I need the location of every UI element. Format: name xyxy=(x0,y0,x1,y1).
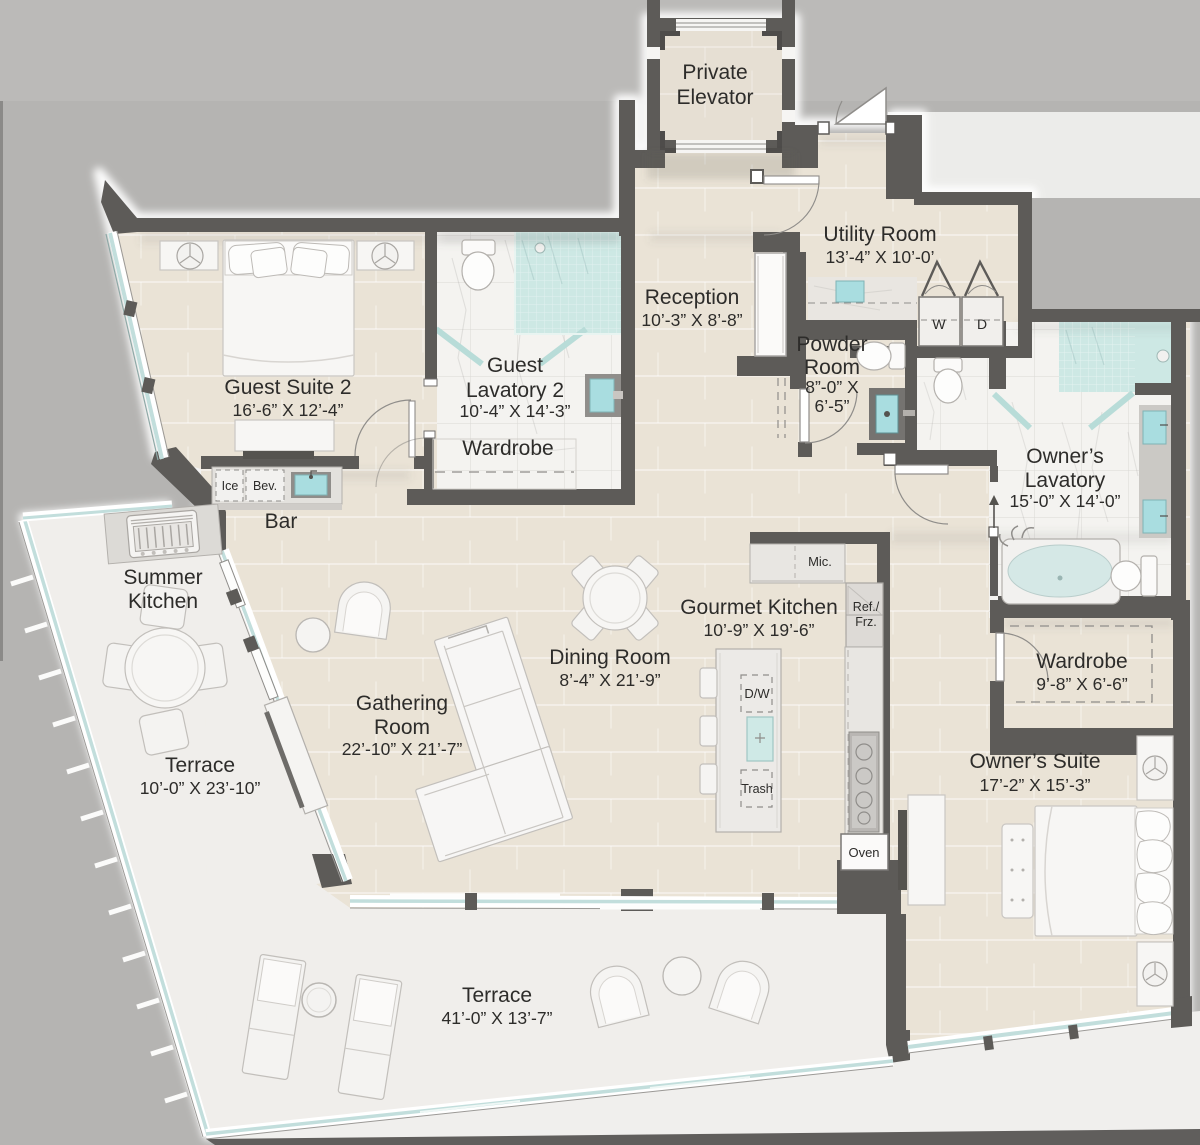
svg-text:D/W: D/W xyxy=(744,686,770,701)
svg-text:Room: Room xyxy=(804,356,860,379)
svg-text:D: D xyxy=(977,316,987,332)
svg-text:Frz.: Frz. xyxy=(855,615,877,629)
svg-text:10’-0” X 23’-10”: 10’-0” X 23’-10” xyxy=(140,778,261,798)
svg-text:Gathering: Gathering xyxy=(356,692,448,715)
svg-text:Terrace: Terrace xyxy=(165,754,235,777)
svg-text:Guest Suite 2: Guest Suite 2 xyxy=(224,376,351,399)
svg-text:Lavatory 2: Lavatory 2 xyxy=(466,379,564,402)
svg-text:Terrace: Terrace xyxy=(462,984,532,1007)
svg-text:10’-3” X 8’-8”: 10’-3” X 8’-8” xyxy=(641,310,742,330)
svg-text:Utility Room: Utility Room xyxy=(823,223,936,246)
svg-text:10’-9” X 19’-6”: 10’-9” X 19’-6” xyxy=(704,620,815,640)
svg-text:17’-2” X 15’-3”: 17’-2” X 15’-3” xyxy=(980,775,1091,795)
svg-text:Room: Room xyxy=(374,716,430,739)
svg-text:Owner’s Suite: Owner’s Suite xyxy=(969,750,1100,773)
svg-text:8’-4” X 21’-9”: 8’-4” X 21’-9” xyxy=(559,670,660,690)
svg-text:Kitchen: Kitchen xyxy=(128,590,198,613)
svg-text:Lavatory: Lavatory xyxy=(1025,469,1106,492)
svg-text:Bar: Bar xyxy=(265,510,298,533)
svg-text:Gourmet Kitchen: Gourmet Kitchen xyxy=(680,596,838,619)
svg-text:Ice: Ice xyxy=(222,479,239,493)
svg-text:Ref./: Ref./ xyxy=(853,600,880,614)
svg-text:Dining Room: Dining Room xyxy=(549,646,670,669)
svg-text:Bev.: Bev. xyxy=(253,479,277,493)
svg-text:9’-8” X 6’-6”: 9’-8” X 6’-6” xyxy=(1036,674,1128,694)
svg-text:Wardrobe: Wardrobe xyxy=(1036,650,1127,673)
svg-text:22’-10” X 21’-7”: 22’-10” X 21’-7” xyxy=(342,739,463,759)
svg-text:Summer: Summer xyxy=(123,566,202,589)
svg-text:Owner’s: Owner’s xyxy=(1026,445,1103,468)
svg-text:41’-0” X 13’-7”: 41’-0” X 13’-7” xyxy=(442,1008,553,1028)
svg-text:Reception: Reception xyxy=(645,286,740,309)
svg-text:W: W xyxy=(932,316,946,332)
svg-text:Private: Private xyxy=(682,61,747,84)
svg-text:Trash: Trash xyxy=(741,782,773,796)
svg-text:Oven: Oven xyxy=(848,845,879,860)
svg-text:6’-5”: 6’-5” xyxy=(814,396,849,416)
svg-text:Guest: Guest xyxy=(487,354,543,377)
svg-text:8”-0” X: 8”-0” X xyxy=(805,377,859,397)
svg-text:13’-4” X 10’-0’: 13’-4” X 10’-0’ xyxy=(826,247,935,267)
svg-text:16’-6” X 12’-4”: 16’-6” X 12’-4” xyxy=(233,400,344,420)
svg-text:Mic.: Mic. xyxy=(808,554,832,569)
svg-text:15’-0” X 14’-0”: 15’-0” X 14’-0” xyxy=(1010,491,1121,511)
svg-text:Powder: Powder xyxy=(796,333,867,356)
svg-text:Elevator: Elevator xyxy=(676,86,753,109)
svg-text:Wardrobe: Wardrobe xyxy=(462,437,553,460)
svg-text:10’-4” X 14’-3”: 10’-4” X 14’-3” xyxy=(460,401,571,421)
